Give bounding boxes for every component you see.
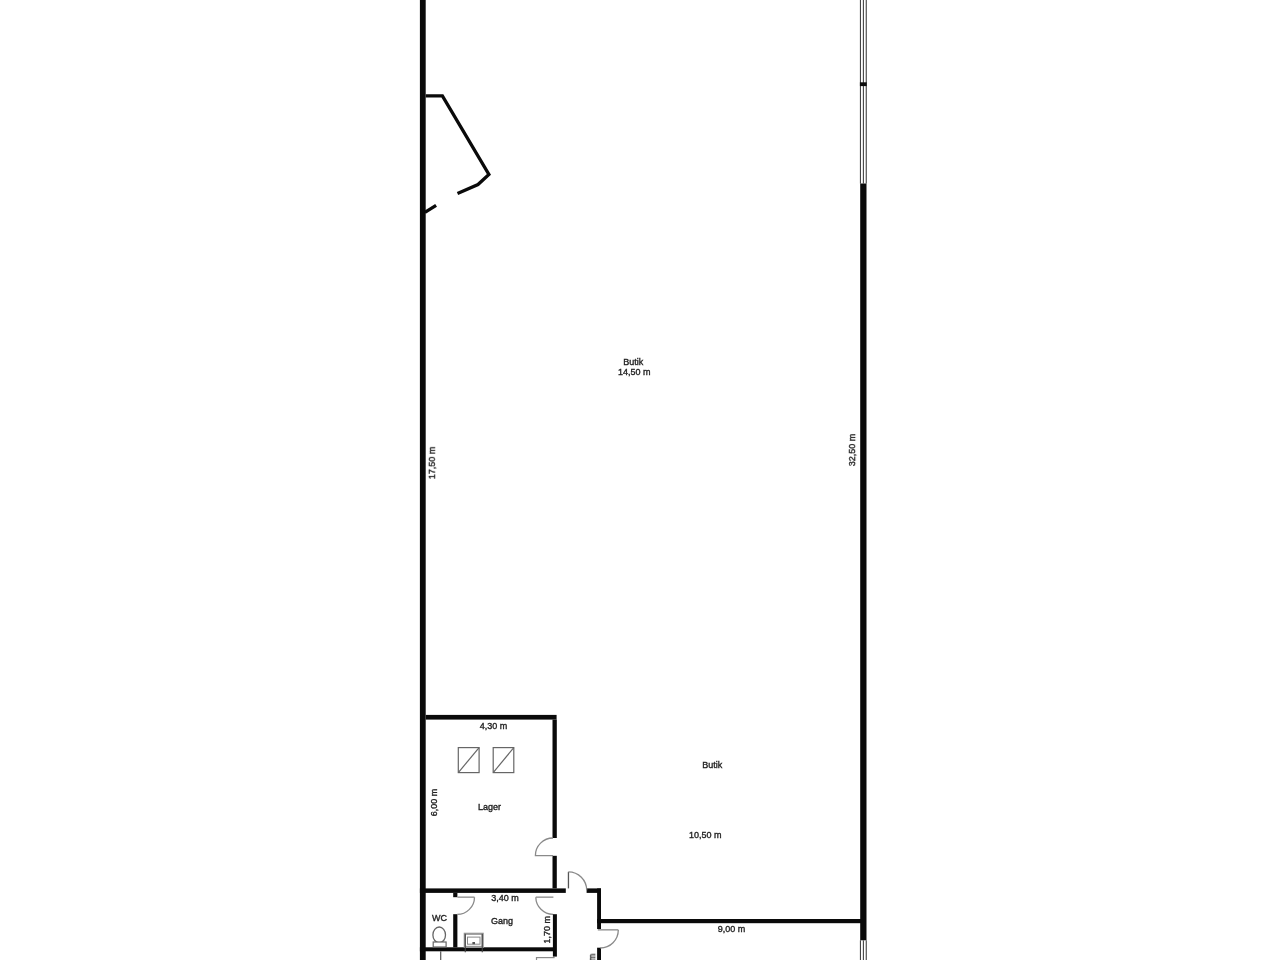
svg-text:Gang: Gang bbox=[491, 916, 513, 926]
svg-text:2,50 m: 2,50 m bbox=[587, 954, 597, 960]
svg-text:Lager: Lager bbox=[478, 802, 501, 812]
svg-text:Butik: Butik bbox=[623, 357, 644, 367]
svg-text:32,50 m: 32,50 m bbox=[847, 434, 857, 467]
svg-text:1,70 m: 1,70 m bbox=[542, 916, 552, 944]
svg-text:WC: WC bbox=[432, 913, 447, 923]
svg-text:9,00 m: 9,00 m bbox=[718, 924, 746, 934]
svg-text:17,50 m: 17,50 m bbox=[427, 447, 437, 480]
svg-text:6,00 m: 6,00 m bbox=[429, 789, 439, 817]
svg-text:3,40 m: 3,40 m bbox=[491, 893, 519, 903]
svg-text:14,50 m: 14,50 m bbox=[618, 367, 651, 377]
svg-text:4,30 m: 4,30 m bbox=[480, 721, 508, 731]
svg-text:10,50 m: 10,50 m bbox=[689, 830, 722, 840]
svg-text:Butik: Butik bbox=[702, 760, 723, 770]
